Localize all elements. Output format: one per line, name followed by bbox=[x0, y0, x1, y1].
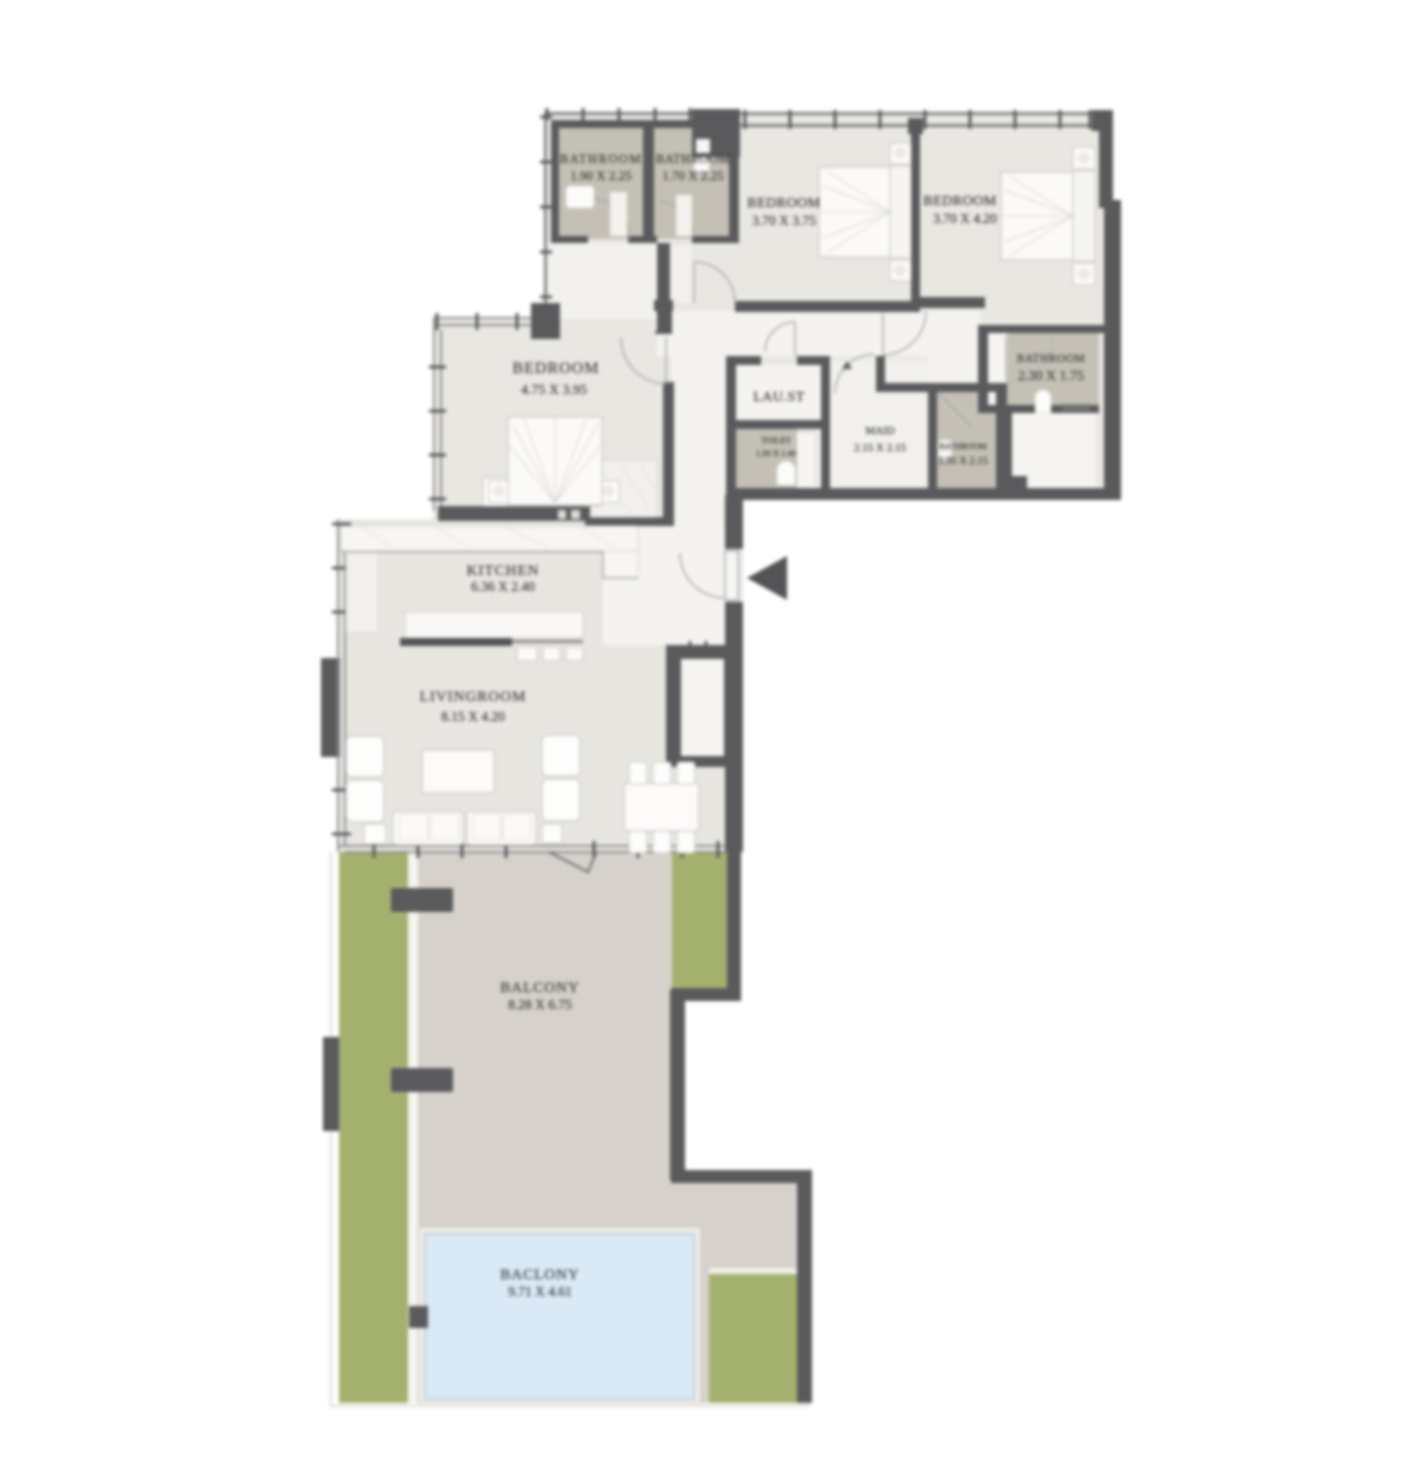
svg-text:BATHROOM: BATHROOM bbox=[1017, 353, 1086, 365]
svg-text:LIVINGROOM: LIVINGROOM bbox=[420, 689, 527, 705]
svg-text:4.75 X 3.95: 4.75 X 3.95 bbox=[521, 383, 587, 398]
svg-text:3.70 X 3.75: 3.70 X 3.75 bbox=[752, 213, 816, 228]
svg-text:3.70 X 4.20: 3.70 X 4.20 bbox=[933, 211, 997, 226]
svg-text:6.36 X 2.40: 6.36 X 2.40 bbox=[471, 579, 535, 594]
svg-text:8.15 X 4.20: 8.15 X 4.20 bbox=[441, 709, 505, 724]
svg-text:9.71 X 4.61: 9.71 X 4.61 bbox=[508, 1284, 572, 1299]
svg-text:BATHROOM: BATHROOM bbox=[656, 152, 730, 166]
svg-text:1.35 X 2.15: 1.35 X 2.15 bbox=[938, 456, 988, 467]
svg-text:1.90 X 2.25: 1.90 X 2.25 bbox=[570, 168, 631, 183]
svg-text:TOILET: TOILET bbox=[761, 435, 791, 445]
svg-text:2.30 X 1.75: 2.30 X 1.75 bbox=[1018, 369, 1084, 384]
svg-text:BATHROOM: BATHROOM bbox=[560, 152, 642, 166]
svg-text:8.28 X 6.75: 8.28 X 6.75 bbox=[508, 997, 572, 1012]
svg-text:BEDROOM: BEDROOM bbox=[512, 360, 599, 377]
svg-text:BALCONY: BALCONY bbox=[500, 980, 580, 996]
svg-text:BEDROOM: BEDROOM bbox=[747, 196, 821, 211]
svg-text:MAID: MAID bbox=[865, 425, 894, 437]
svg-text:LAU.ST: LAU.ST bbox=[753, 390, 805, 405]
svg-text:BACLONY: BACLONY bbox=[500, 1267, 580, 1283]
svg-text:BEDROOM: BEDROOM bbox=[923, 194, 997, 209]
svg-text:1.70 X 2.25: 1.70 X 2.25 bbox=[662, 168, 723, 183]
svg-text:BATHROOM: BATHROOM bbox=[939, 441, 987, 451]
svg-text:KITCHEN: KITCHEN bbox=[467, 563, 540, 579]
svg-text:2.15 X 2.15: 2.15 X 2.15 bbox=[854, 442, 906, 454]
svg-text:1.50 X 1.40: 1.50 X 1.40 bbox=[756, 448, 796, 458]
